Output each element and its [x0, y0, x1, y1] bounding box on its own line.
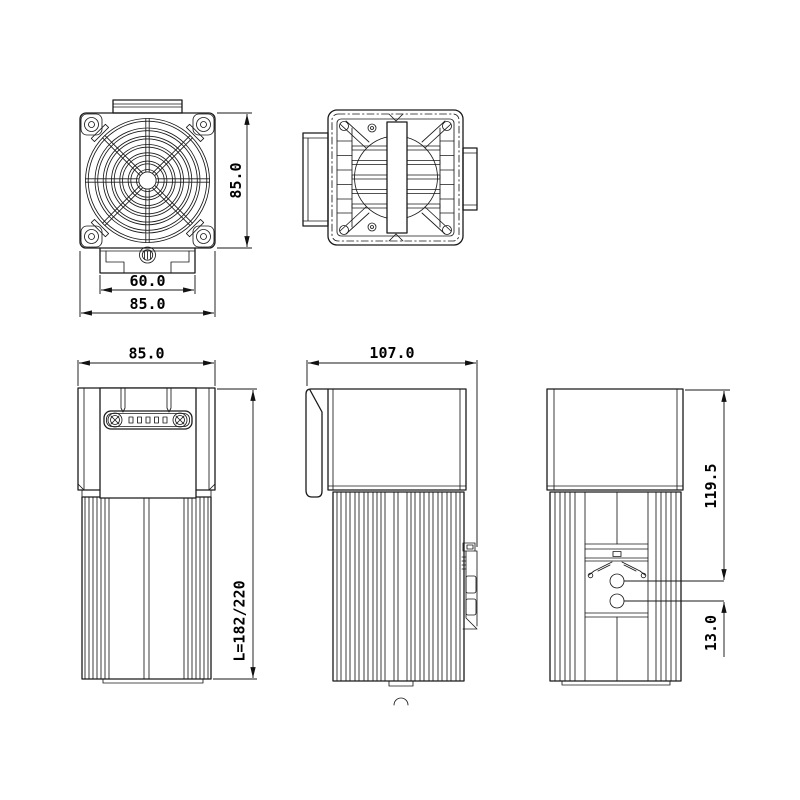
right-mount-tab [463, 148, 477, 210]
fan-grille-spokes [86, 119, 210, 243]
rear-heatsink-fins [555, 492, 676, 681]
rear-housing-outline [547, 389, 683, 490]
corner-screw-pads [81, 114, 214, 247]
heater-front-view [78, 388, 215, 683]
bottom-tab [389, 681, 413, 686]
dimension-hole-spacing: 13.0 [702, 602, 724, 657]
dimension-overall-length: L=182/220 [213, 389, 257, 679]
dimension-fan-view-height: 85.0 [217, 113, 252, 248]
fan-guard-front-view [80, 100, 215, 273]
terminal-cover-panel [100, 388, 196, 498]
dim-text-hole-spacing: 13.0 [702, 615, 720, 651]
side-housing-outline [328, 389, 466, 490]
side-heatsink-fins [337, 492, 460, 681]
dimension-front-view-width: 85.0 [78, 345, 215, 387]
dim-text-side-view-depth: 107.0 [369, 344, 414, 362]
din-rail-recess [585, 544, 648, 617]
left-mount-tab [303, 133, 328, 226]
central-support-bar [387, 122, 407, 233]
technical-drawing-canvas: 85.0 60.0 85.0 [0, 0, 800, 800]
dim-text-overall-length: L=182/220 [231, 580, 249, 661]
housing-bottom-view [303, 110, 477, 245]
top-clip-tab [113, 100, 182, 113]
dim-text-clip-to-top-offset: 119.5 [702, 463, 720, 508]
dim-text-front-view-width: 85.0 [128, 345, 164, 363]
side-heatsink-body [333, 492, 464, 681]
dim-text-fan-view-height: 85.0 [227, 162, 245, 198]
fan-grille-rings [86, 119, 210, 243]
dim-text-fan-view-width: 85.0 [129, 295, 165, 313]
din-clip-side [306, 389, 328, 497]
din-clip-bracket [100, 247, 195, 273]
drawing-sheet: 85.0 60.0 85.0 [0, 0, 800, 800]
dimension-fan-view-clip-width: 60.0 [100, 272, 195, 294]
dim-text-fan-view-clip-width: 60.0 [129, 272, 165, 290]
heater-rear-view [547, 389, 683, 685]
heater-side-view [306, 389, 477, 705]
heatsink-fins [85, 497, 208, 679]
mounting-hole-lower [610, 594, 624, 608]
bottom-arc-mark [394, 698, 408, 705]
mounting-hole-upper [610, 574, 624, 588]
